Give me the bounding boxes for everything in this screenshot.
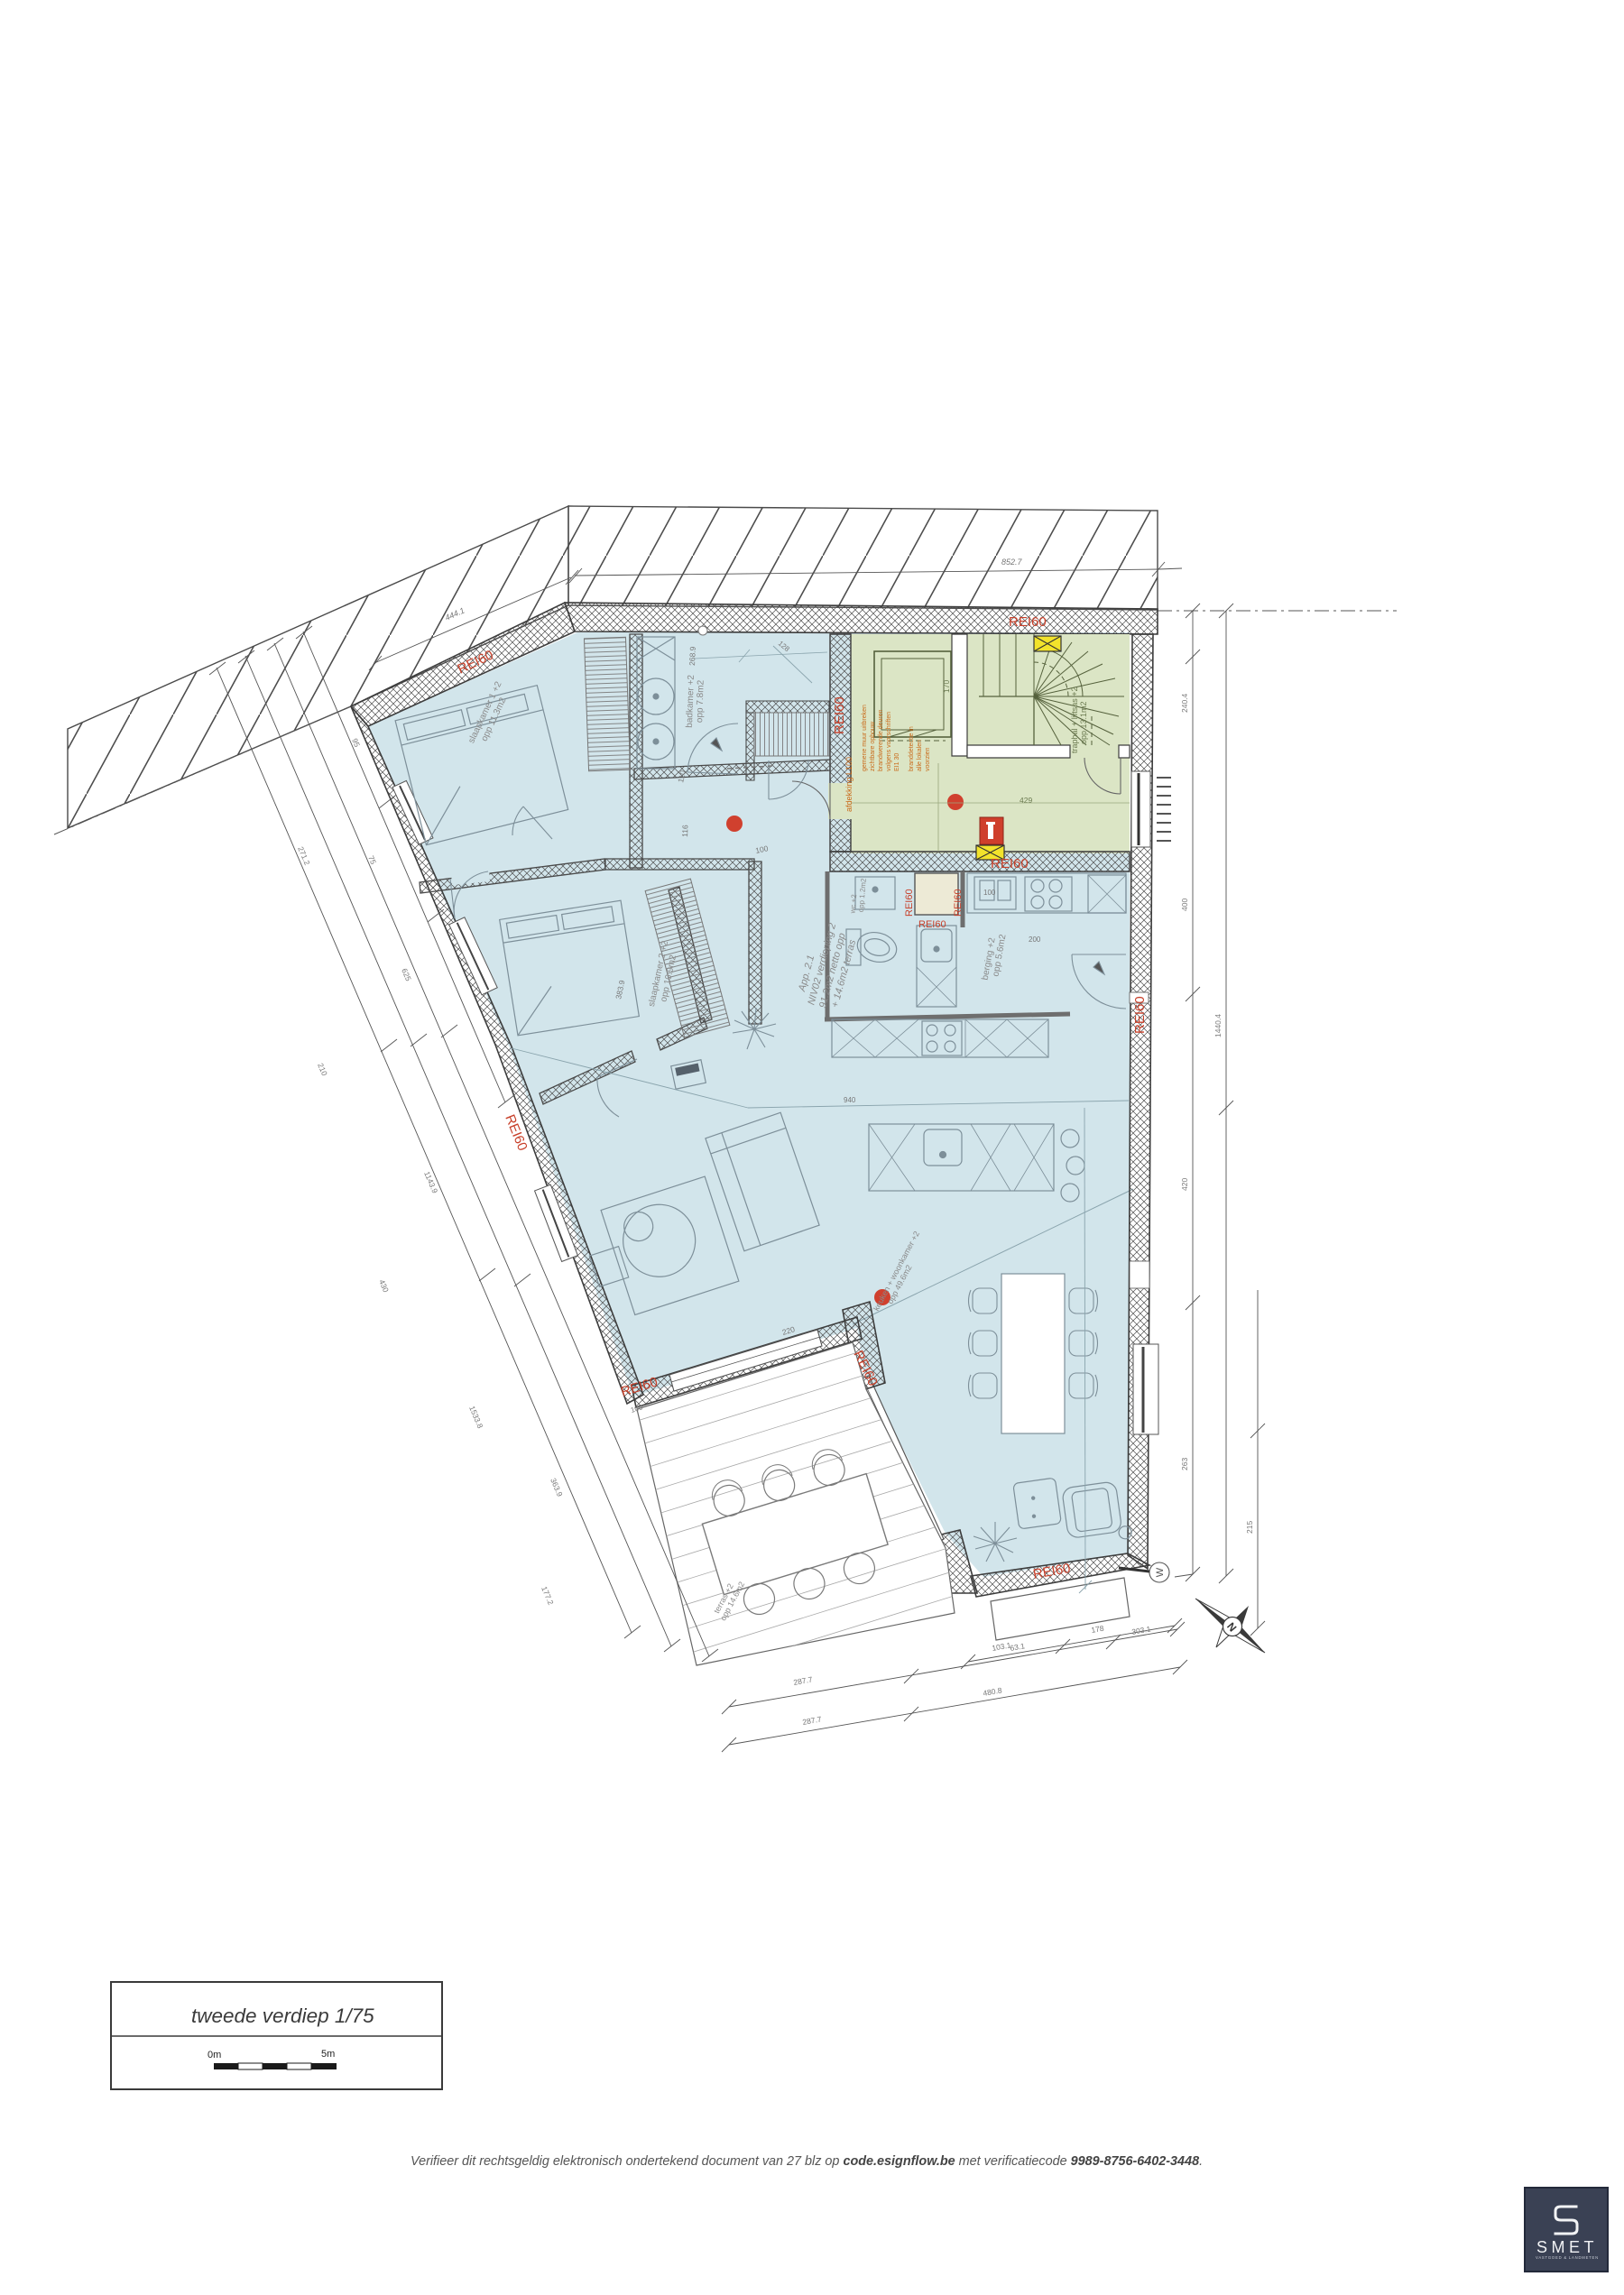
svg-text:63.1: 63.1 [1010,1641,1026,1653]
svg-text:178: 178 [1091,1624,1105,1635]
svg-text:287.7: 287.7 [793,1674,814,1687]
svg-text:afdekking L100: afdekking L100 [844,757,854,812]
svg-text:REI60: REI60 [904,889,915,917]
svg-text:268.9: 268.9 [687,646,697,666]
svg-text:103.1: 103.1 [992,1640,1012,1653]
svg-text:75: 75 [366,854,378,866]
svg-text:Verifieer dit rechtsgeldig ele: Verifieer dit rechtsgeldig elektronisch … [411,2154,1203,2169]
svg-text:W: W [1155,1567,1166,1577]
svg-text:brandwerende deuren: brandwerende deuren [878,709,884,771]
svg-text:400: 400 [1180,899,1189,911]
svg-text:1143.9: 1143.9 [422,1170,439,1195]
svg-text:REI60: REI60 [1132,996,1148,1034]
svg-text:1533.8: 1533.8 [467,1405,484,1430]
svg-text:branddetectie in: branddetectie in [909,726,915,771]
svg-text:210: 210 [316,1062,329,1077]
svg-text:5m: 5m [321,2049,335,2060]
svg-text:240.4: 240.4 [1180,693,1189,713]
svg-text:voorzien: voorzien [925,747,931,771]
svg-text:625: 625 [400,967,413,982]
svg-text:170: 170 [942,680,951,693]
svg-text:215: 215 [1245,1521,1254,1534]
svg-text:116: 116 [680,825,689,837]
svg-text:alle lokalen: alle lokalen [917,740,923,771]
svg-text:REI60: REI60 [918,919,946,930]
svg-text:EI1 30: EI1 30 [894,753,900,771]
svg-text:tweede verdiep 1/75: tweede verdiep 1/75 [191,2005,374,2027]
svg-text:287.7: 287.7 [802,1714,823,1727]
svg-text:430: 430 [377,1278,391,1294]
svg-text:480.8: 480.8 [983,1685,1003,1698]
svg-text:REI60: REI60 [1009,614,1047,630]
svg-text:420: 420 [1180,1178,1189,1191]
svg-text:volgens voorschriften: volgens voorschriften [886,712,892,771]
svg-text:opp 7.8m2: opp 7.8m2 [695,679,706,723]
svg-text:REI60: REI60 [832,696,847,734]
svg-text:REI60: REI60 [991,856,1029,871]
svg-text:852.7: 852.7 [1001,558,1023,567]
svg-text:opp 13.1m2: opp 13.1m2 [1079,701,1088,744]
svg-text:gemene muur uitbreken: gemene muur uitbreken [862,705,868,771]
svg-text:940: 940 [844,1096,856,1104]
svg-text:271.2: 271.2 [296,845,312,867]
svg-text:263: 263 [1180,1458,1189,1470]
svg-text:traphal + liftsas +2: traphal + liftsas +2 [1070,687,1079,753]
svg-text:VASTGOED & LANDMETEN: VASTGOED & LANDMETEN [1536,2255,1599,2260]
svg-text:REI60: REI60 [953,889,964,917]
svg-text:363.9: 363.9 [549,1477,565,1498]
svg-text:200: 200 [1029,936,1041,944]
svg-text:zichtbare opbouw: zichtbare opbouw [870,721,876,771]
svg-text:0m: 0m [208,2050,221,2060]
svg-text:429: 429 [1020,796,1032,805]
svg-text:SMET: SMET [1536,2238,1598,2256]
svg-text:100: 100 [983,889,996,897]
svg-text:1440.4: 1440.4 [1213,1014,1223,1037]
svg-text:95: 95 [350,737,362,749]
svg-text:177.2: 177.2 [540,1585,556,1607]
